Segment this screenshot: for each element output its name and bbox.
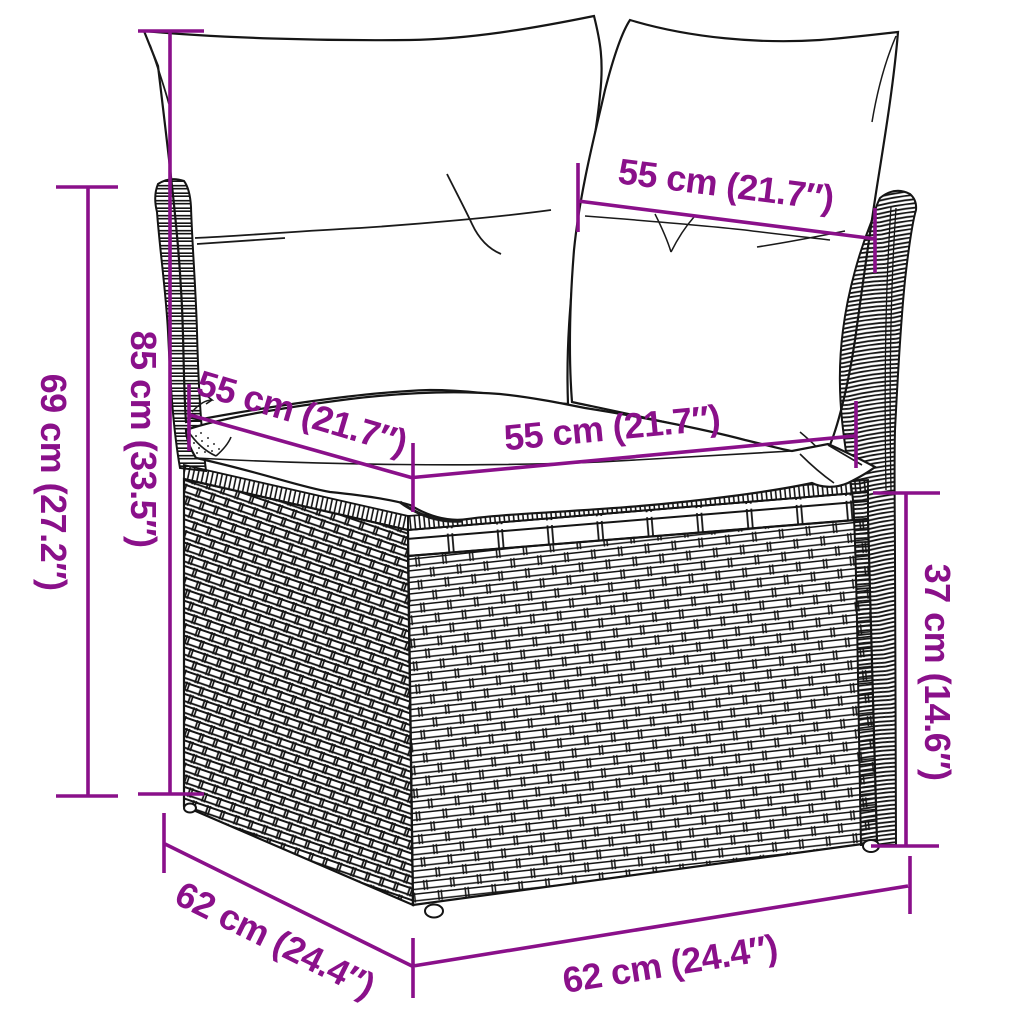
svg-text:37 cm (14.6″): 37 cm (14.6″)	[917, 564, 958, 781]
svg-text:85 cm (33.5″): 85 cm (33.5″)	[123, 331, 164, 548]
svg-text:69 cm (27.2″): 69 cm (27.2″)	[33, 374, 74, 591]
